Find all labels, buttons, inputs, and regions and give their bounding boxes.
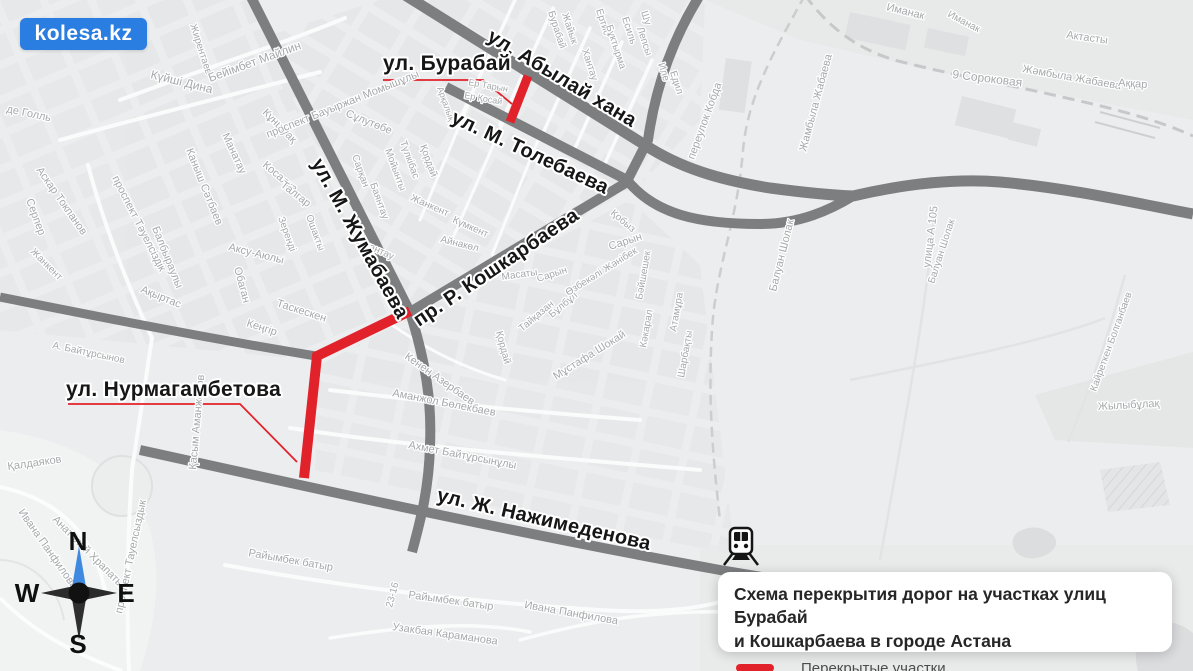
legend-title-line1: Схема перекрытия дорог на участках улиц … (734, 583, 1156, 630)
legend-title-line2: и Кошкарбаева в городе Астана (734, 630, 1156, 653)
compass-center (69, 583, 90, 604)
kolesa-logo[interactable]: kolesa.kz (20, 18, 147, 50)
closed-segment-swatch (736, 664, 774, 671)
minor-street-label-51: Аққар (1118, 77, 1148, 91)
map-screenshot: ЖирентаевКүйші ДинаБейімбет МайлинКұншуа… (0, 0, 1193, 671)
cemetery-hatch (1100, 462, 1170, 512)
kolesa-logo-text: kolesa.kz (35, 22, 133, 46)
compass-n-label: N (69, 526, 88, 556)
legend-card: Схема перекрытия дорог на участках улиц … (718, 572, 1172, 652)
compass-s-label: S (69, 629, 86, 659)
compass-w-label: W (15, 578, 40, 608)
street-label-burabai: ул. Бурабай (383, 52, 511, 75)
train-station-icon[interactable] (724, 528, 758, 565)
compass-e-label: E (117, 578, 134, 608)
legend-closed-label: Перекрытые участки (801, 660, 946, 671)
city-map[interactable]: ЖирентаевКүйші ДинаБейімбет МайлинКұншуа… (0, 0, 1193, 671)
street-label-nurmagambetova: ул. Нурмагамбетова (66, 378, 281, 401)
